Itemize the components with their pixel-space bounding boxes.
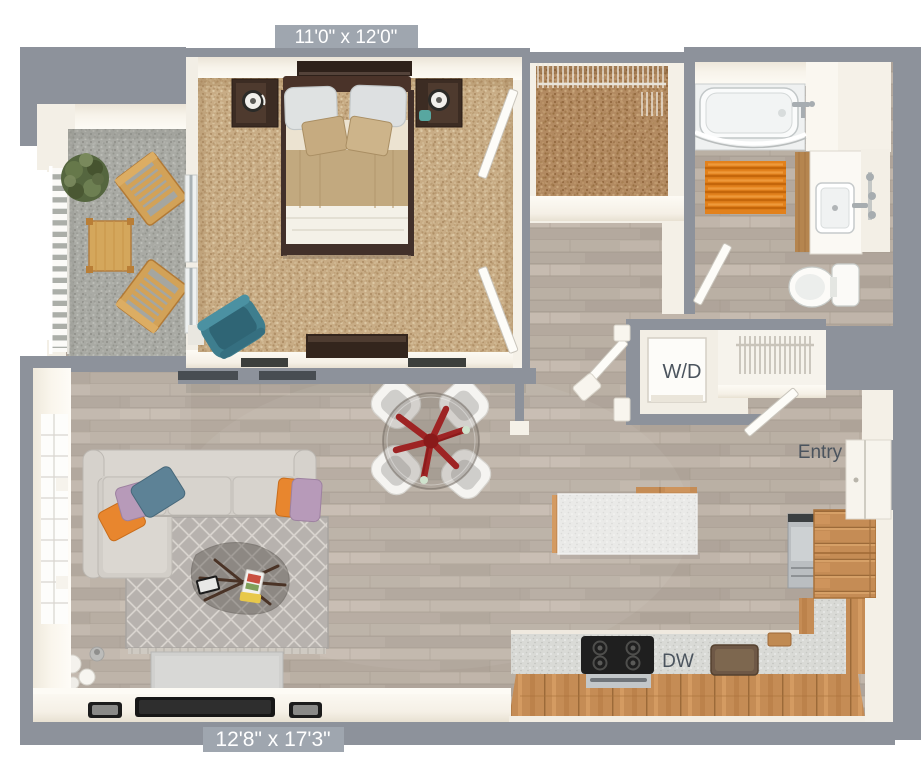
svg-text:DW: DW bbox=[662, 651, 694, 672]
svg-text:W/D: W/D bbox=[663, 361, 702, 383]
svg-text:11'0" x 12'0": 11'0" x 12'0" bbox=[295, 27, 398, 48]
svg-text:12'8" x 17'3": 12'8" x 17'3" bbox=[215, 728, 330, 751]
svg-text:Entry: Entry bbox=[798, 442, 843, 463]
